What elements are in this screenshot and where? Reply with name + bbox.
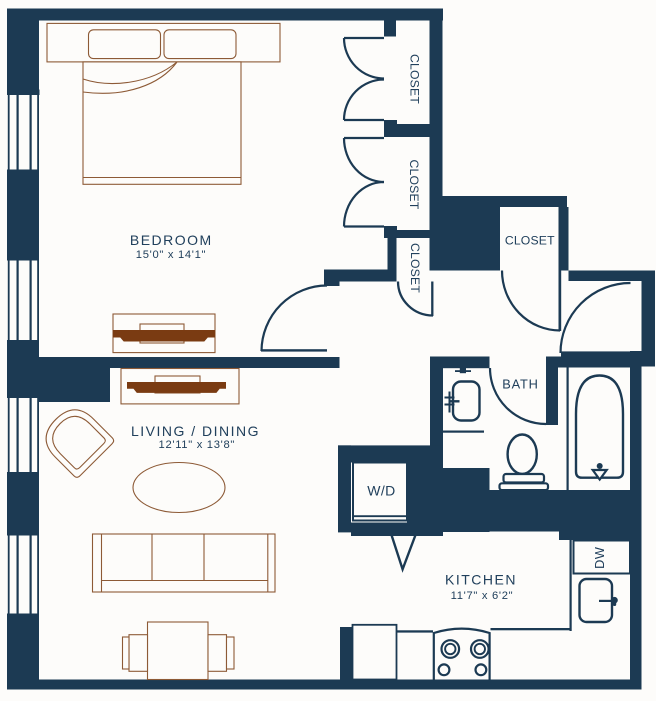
svg-text:DW: DW xyxy=(592,546,607,569)
svg-text:BEDROOM: BEDROOM xyxy=(130,232,213,248)
svg-text:KITCHEN: KITCHEN xyxy=(445,572,517,588)
svg-text:BATH: BATH xyxy=(502,377,538,392)
svg-text:15'0" x 14'1": 15'0" x 14'1" xyxy=(136,249,206,261)
svg-text:LIVING / DINING: LIVING / DINING xyxy=(131,423,260,439)
svg-text:CLOSET: CLOSET xyxy=(505,234,555,248)
svg-text:CLOSET: CLOSET xyxy=(408,54,422,104)
svg-text:W/D: W/D xyxy=(367,483,395,499)
svg-text:CLOSET: CLOSET xyxy=(407,160,421,210)
svg-text:12'11" x 13'8": 12'11" x 13'8" xyxy=(159,439,236,451)
svg-text:11'7" x 6'2": 11'7" x 6'2" xyxy=(451,590,514,602)
svg-text:CLOSET: CLOSET xyxy=(408,243,422,293)
